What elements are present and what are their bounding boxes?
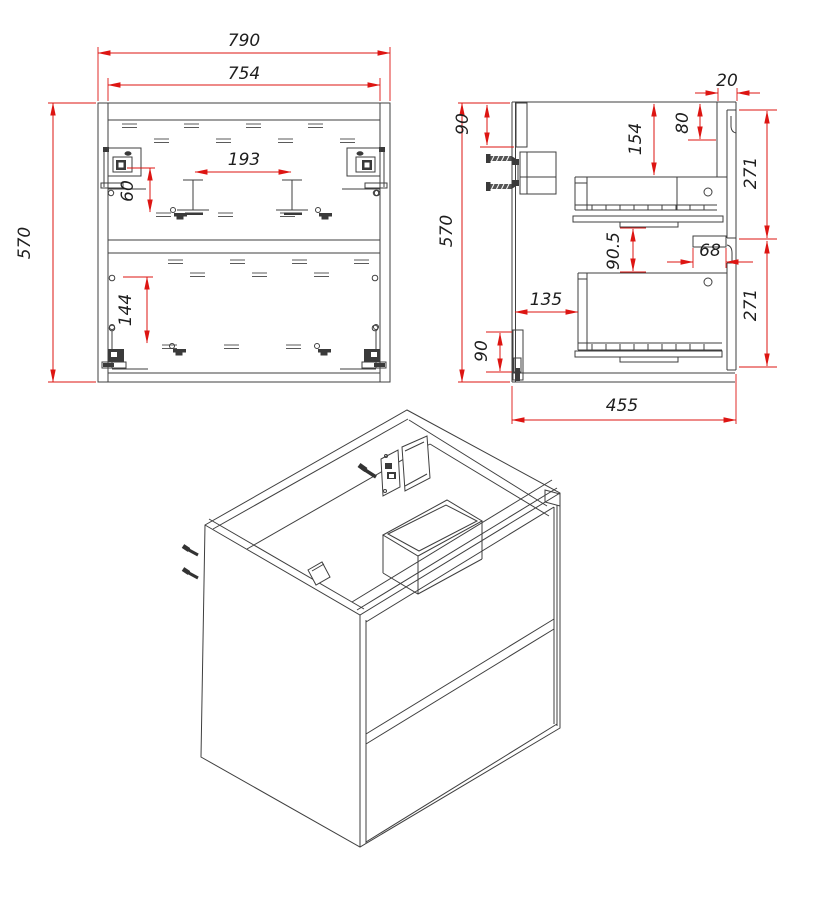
rail-clip <box>515 368 520 381</box>
iso-side-screws <box>183 546 198 578</box>
dim-bottom-offset: 144 <box>116 294 136 326</box>
dim-center-cutout: 193 <box>228 150 260 170</box>
dim-depth: 455 <box>606 396 638 416</box>
hanging-rail-top <box>516 103 527 147</box>
bottom-drawer-section <box>575 273 727 362</box>
dim-mid-clearance: 90.5 <box>604 232 624 270</box>
dim-top-offset: 60 <box>118 180 138 202</box>
dim-side-height: 570 <box>437 215 457 247</box>
cabinet-drawing: 790 754 570 193 60 144 <box>0 0 814 900</box>
dim-recess-depth: 154 <box>626 123 646 155</box>
dim-rail-bottom: 90 <box>472 340 492 362</box>
front-carcass-panels <box>108 103 380 382</box>
dim-gap-bracket: 68 <box>699 241 721 261</box>
side-view: 570 90 20 154 80 271 90.5 68 135 271 90 … <box>437 71 777 424</box>
front-view: 790 754 570 193 60 144 <box>15 31 390 382</box>
dim-back-clearance: 135 <box>530 290 562 310</box>
technical-drawing-canvas: 790 754 570 193 60 144 <box>0 0 814 900</box>
front-carcass-outline <box>98 103 390 382</box>
front-dimensions: 790 754 570 193 60 144 <box>15 31 390 382</box>
wall-bracket <box>512 152 556 194</box>
dim-front-overhang: 20 <box>716 71 738 91</box>
dim-overall-width: 790 <box>228 31 260 51</box>
dim-bottom-drawer-front: 271 <box>741 289 761 321</box>
iso-silhouette <box>201 410 560 847</box>
isometric-view <box>183 410 560 847</box>
dim-front-height: 570 <box>15 227 35 259</box>
dim-inner-width: 754 <box>228 64 260 84</box>
dim-rail-top: 90 <box>453 113 473 135</box>
dim-front-top-gap: 80 <box>673 112 693 134</box>
top-drawer-section <box>573 177 727 227</box>
dim-top-drawer-front: 271 <box>741 157 761 189</box>
